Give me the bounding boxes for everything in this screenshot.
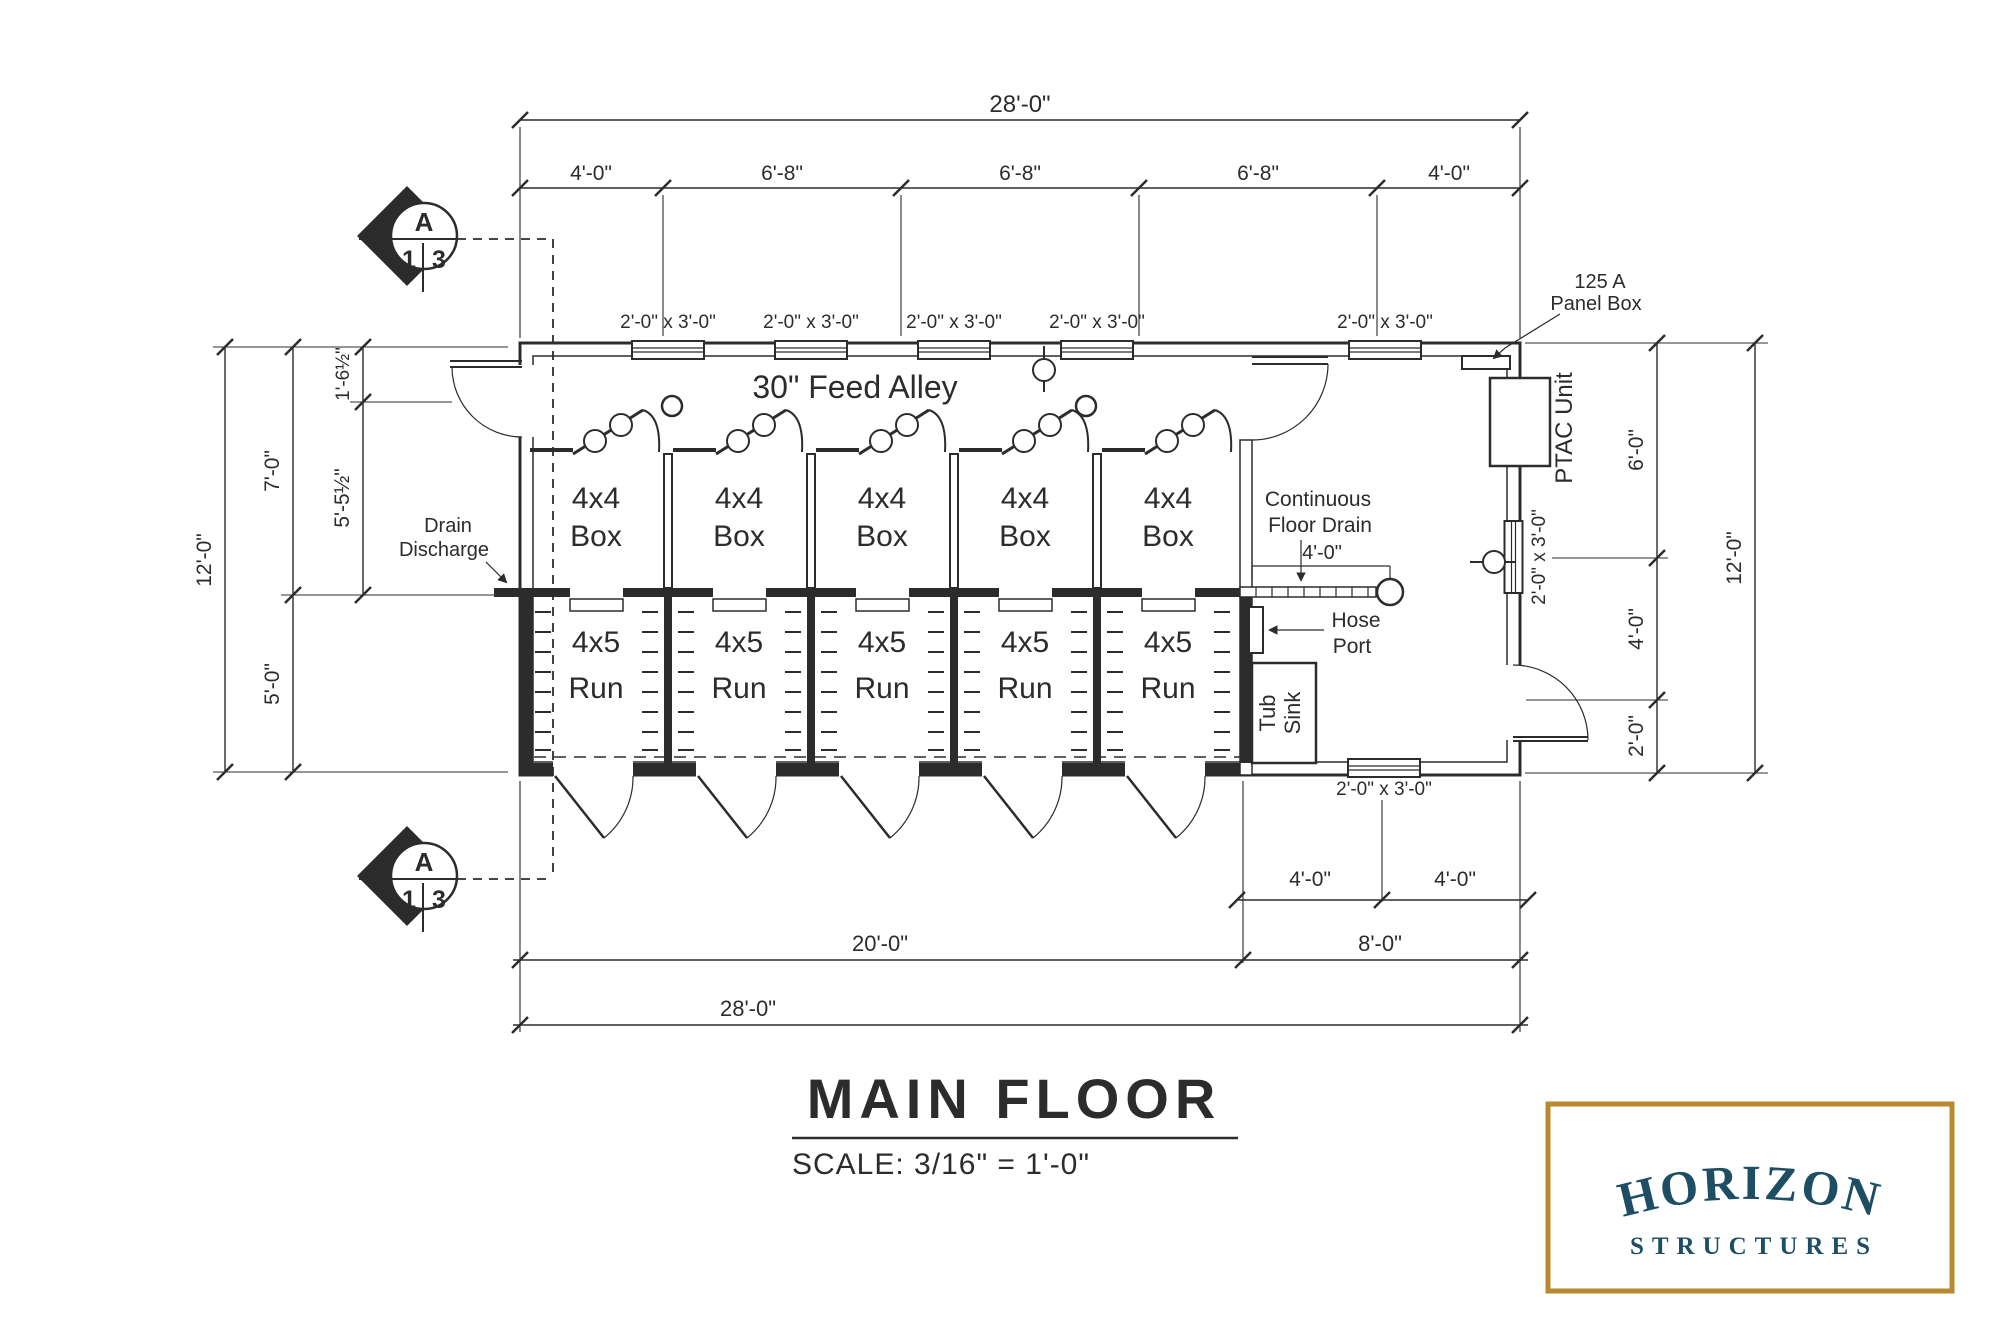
panel-box-label: Panel Box xyxy=(1550,293,1641,315)
window-icon xyxy=(1349,341,1421,359)
run-label: Run xyxy=(997,672,1052,705)
cfd-dim: 4'-0" xyxy=(1302,542,1342,564)
dim-left-inner-lower: 5'-5½" xyxy=(331,468,354,527)
west-door xyxy=(450,361,537,437)
dim-left-overall: 12'-0" xyxy=(193,533,216,587)
east-door xyxy=(1502,665,1588,741)
stall-label: Box xyxy=(570,520,622,553)
title-block: MAIN FLOOR SCALE: 3/16" = 1'-0" xyxy=(792,1067,1238,1181)
dim-left-upper: 7'-0" xyxy=(261,450,284,492)
section-marker-bottom: A 1 3 xyxy=(357,826,457,932)
hose-port-label: Port xyxy=(1333,635,1372,658)
panel-box-label: 125 A xyxy=(1574,271,1626,293)
section-marker-top: A 1 3 xyxy=(357,186,457,292)
window-icon xyxy=(632,341,704,359)
window-label: 2'-0" x 3'-0" xyxy=(1337,312,1433,333)
drawing-scale: SCALE: 3/16" = 1'-0" xyxy=(792,1148,1090,1181)
floor-plan-drawing: 28'-0" 4'-0" 6'-8" 6'-8" 6'-8" 4'-0" 12'… xyxy=(0,0,2000,1334)
run-label: Run xyxy=(711,672,766,705)
section-sheet: 1 xyxy=(402,886,416,914)
dim-right-overall: 12'-0" xyxy=(1723,531,1746,585)
stall-label: Box xyxy=(1142,520,1194,553)
stall-label: 4x4 xyxy=(1001,482,1049,515)
window-label: 2'-0" x 3'-0" xyxy=(906,312,1002,333)
panel-box xyxy=(1462,356,1510,369)
run-label: Run xyxy=(1140,672,1195,705)
dim-bottom-r1: 4'-0" xyxy=(1289,868,1331,891)
window-label: 2'-0" x 3'-0" xyxy=(1336,779,1432,800)
tub-sink-label: Sink xyxy=(1280,691,1305,735)
logo-tagline: STRUCTURES xyxy=(1630,1233,1878,1260)
dim-right-c: 2'-0" xyxy=(1625,715,1648,757)
window-icon xyxy=(1061,341,1133,359)
dim-left-inner-upper: 1'-6½" xyxy=(333,347,354,401)
stall-label: 4x4 xyxy=(572,482,620,515)
dim-bottom-right: 8'-0" xyxy=(1358,931,1402,956)
dim-right-a: 6'-0" xyxy=(1625,429,1648,471)
dim-top-seg-3: 6'-8" xyxy=(999,162,1041,185)
section-letter: A xyxy=(415,207,434,237)
run-label: 4x5 xyxy=(858,626,906,659)
ptac-unit xyxy=(1490,378,1550,466)
drawing-title: MAIN FLOOR xyxy=(807,1067,1222,1130)
section-sheet: 1 xyxy=(402,246,416,274)
dim-top-seg-5: 4'-0" xyxy=(1428,162,1470,185)
stall-label: Box xyxy=(999,520,1051,553)
window-icon xyxy=(918,341,990,359)
dim-bottom-r2: 4'-0" xyxy=(1434,868,1476,891)
section-sheet: 3 xyxy=(432,886,446,914)
window-icon xyxy=(1505,521,1523,593)
cfd-label: Continuous xyxy=(1265,488,1371,511)
run-label: 4x5 xyxy=(715,626,763,659)
window-label: 2'-0" x 3'-0" xyxy=(1529,509,1550,605)
window-icon xyxy=(1348,759,1420,777)
run-label: 4x5 xyxy=(572,626,620,659)
dim-top-seg-1: 4'-0" xyxy=(570,162,612,185)
dim-bottom-overall: 28'-0" xyxy=(720,996,776,1021)
ptac-label: PTAC Unit xyxy=(1551,372,1578,484)
dim-right-b: 4'-0" xyxy=(1625,608,1648,650)
dim-bottom-left: 20'-0" xyxy=(852,931,908,956)
dim-left-lower: 5'-0" xyxy=(261,663,284,705)
section-sheet: 3 xyxy=(432,246,446,274)
tub-sink-label: Tub xyxy=(1255,694,1280,731)
drain-discharge-label: Drain xyxy=(424,515,472,537)
window-icon xyxy=(775,341,847,359)
cfd-label: Floor Drain xyxy=(1268,514,1372,537)
dim-top-overall: 28'-0" xyxy=(989,91,1050,118)
stall-label: 4x4 xyxy=(1144,482,1192,515)
stall-label: 4x4 xyxy=(715,482,763,515)
section-letter: A xyxy=(415,847,434,877)
blueprint-page: 28'-0" 4'-0" 6'-8" 6'-8" 6'-8" 4'-0" 12'… xyxy=(0,0,2000,1334)
stall-label: Box xyxy=(856,520,908,553)
window-label: 2'-0" x 3'-0" xyxy=(763,312,859,333)
top-dimensions: 28'-0" 4'-0" 6'-8" 6'-8" 6'-8" 4'-0" xyxy=(512,91,1528,338)
window-label: 2'-0" x 3'-0" xyxy=(620,312,716,333)
run-label: Run xyxy=(854,672,909,705)
run-left-wall xyxy=(519,595,533,775)
stall-label: 4x4 xyxy=(858,482,906,515)
run-label: Run xyxy=(568,672,623,705)
hose-port xyxy=(1249,607,1263,653)
stall-label: Box xyxy=(713,520,765,553)
hose-port-label: Hose xyxy=(1331,609,1380,632)
logo: HORIZON STRUCTURES xyxy=(1548,1104,1952,1291)
bottom-dimensions: 4'-0" 4'-0" 20'-0" 8'-0" 28'-0" xyxy=(512,781,1536,1033)
feed-alley-label: 30" Feed Alley xyxy=(752,369,957,405)
dim-top-seg-4: 6'-8" xyxy=(1237,162,1279,185)
window-label: 2'-0" x 3'-0" xyxy=(1049,312,1145,333)
run-label: 4x5 xyxy=(1001,626,1049,659)
dim-top-seg-2: 6'-8" xyxy=(761,162,803,185)
run-label: 4x5 xyxy=(1144,626,1192,659)
drain-discharge: Drain Discharge xyxy=(399,515,534,597)
drain-discharge-label: Discharge xyxy=(399,539,489,561)
